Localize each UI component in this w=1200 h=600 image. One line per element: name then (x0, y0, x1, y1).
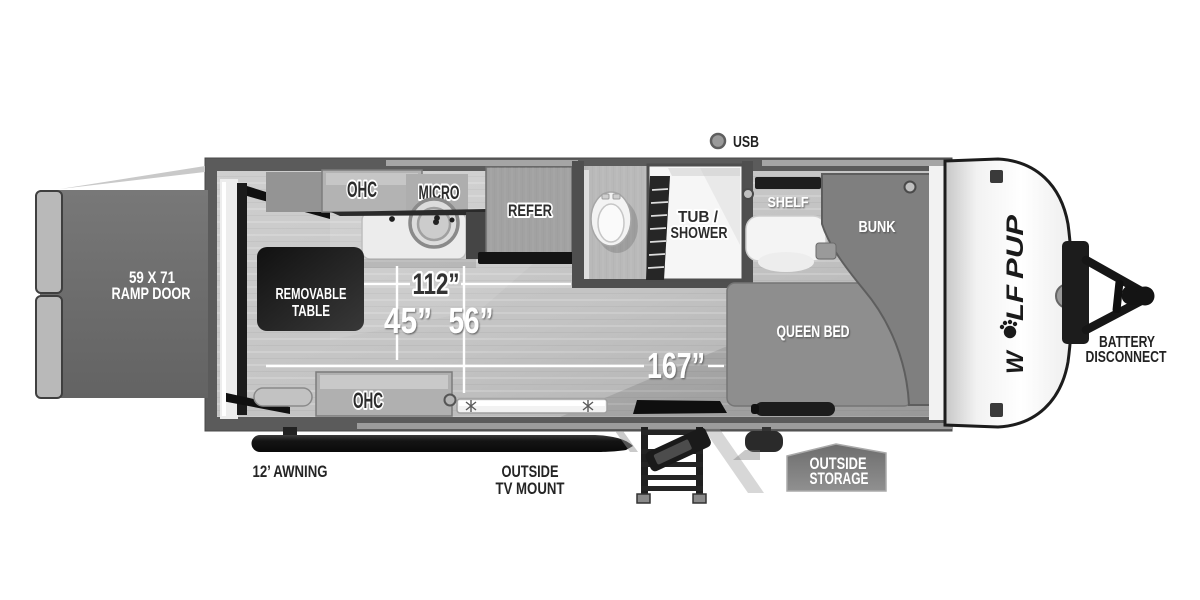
svg-text:TUB /: TUB / (678, 209, 719, 226)
svg-text:SHOWER: SHOWER (671, 225, 728, 242)
svg-text:DISCONNECT: DISCONNECT (1086, 349, 1167, 366)
svg-text:USB: USB (733, 134, 759, 151)
svg-text:TV MOUNT: TV MOUNT (496, 479, 565, 498)
svg-text:RAMP DOOR: RAMP DOOR (112, 284, 191, 303)
svg-text:56”: 56” (449, 300, 494, 341)
svg-text:QUEEN BED: QUEEN BED (777, 322, 850, 341)
svg-text:12’ AWNING: 12’ AWNING (253, 462, 328, 481)
svg-text:REFER: REFER (508, 201, 552, 220)
svg-text:OHC: OHC (353, 388, 383, 413)
svg-text:W: W (1002, 349, 1029, 374)
svg-text:SHELF: SHELF (768, 194, 809, 211)
svg-text:OHC: OHC (347, 177, 377, 202)
svg-text:BUNK: BUNK (859, 219, 896, 236)
svg-text:112”: 112” (413, 268, 460, 301)
svg-text:REMOVABLE: REMOVABLE (276, 286, 347, 303)
svg-text:TABLE: TABLE (292, 303, 330, 320)
svg-text:STORAGE: STORAGE (810, 469, 869, 488)
svg-text:PUP: PUP (1002, 214, 1029, 279)
svg-text:167”: 167” (647, 345, 705, 386)
svg-text:45”: 45” (384, 300, 432, 341)
svg-text:LF: LF (1002, 283, 1029, 321)
